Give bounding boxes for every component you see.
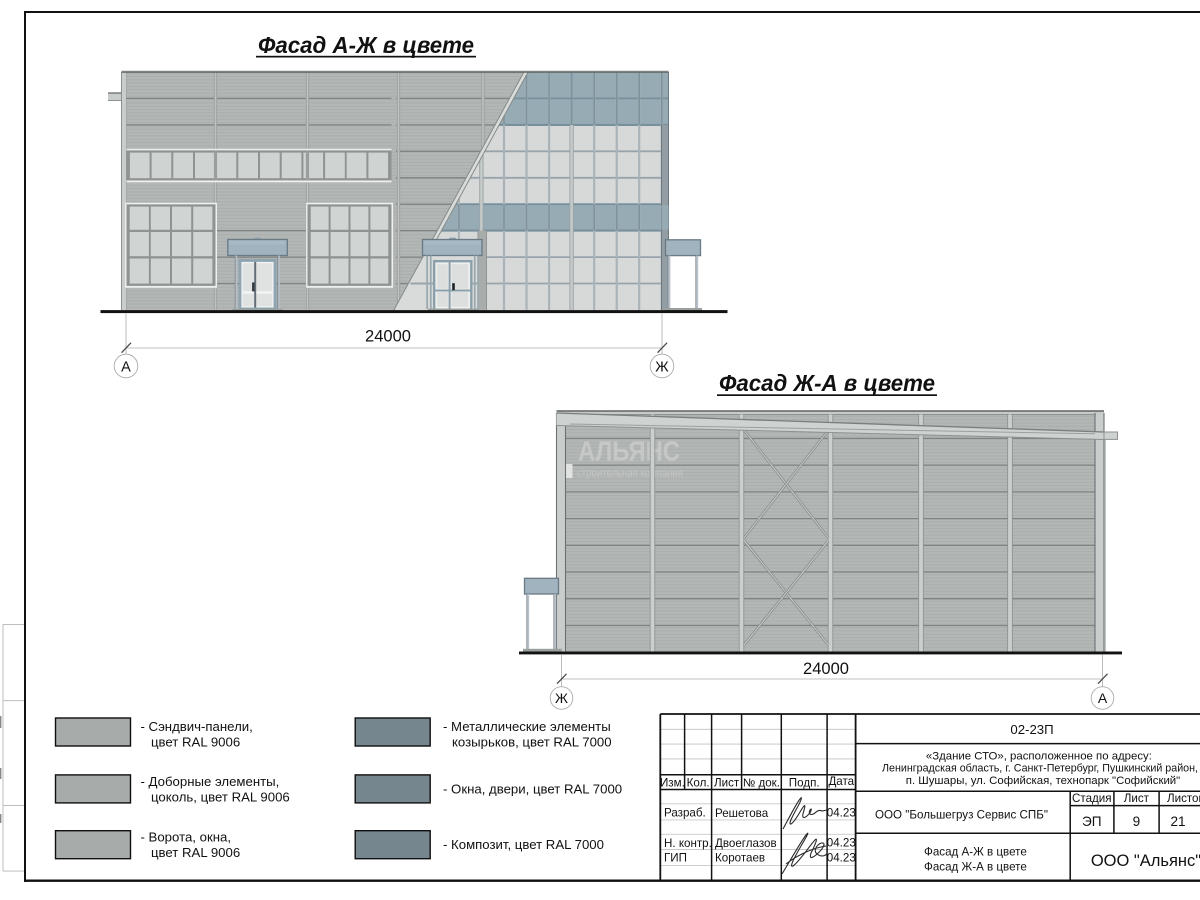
svg-text:Лист: Лист (1124, 792, 1150, 805)
svg-text:цоколь, цвет RAL 9006: цоколь, цвет RAL 9006 (151, 790, 290, 805)
svg-text:ЭП: ЭП (1082, 814, 1102, 829)
svg-text:Дата: Дата (828, 775, 854, 788)
svg-text:Коротаев: Коротаев (715, 852, 765, 865)
svg-text:№ док.: № док. (743, 776, 780, 789)
svg-text:А: А (1098, 690, 1108, 706)
svg-text:Лист: Лист (714, 776, 740, 789)
svg-text:Решетова: Решетова (715, 807, 769, 820)
svg-text:Фасад Ж-А в цвете: Фасад Ж-А в цвете (719, 370, 935, 396)
svg-text:Фасад А-Ж в цвете: Фасад А-Ж в цвете (924, 846, 1027, 859)
svg-text:Кол.: Кол. (687, 776, 710, 789)
svg-text:ГИП: ГИП (664, 852, 687, 865)
svg-text:9: 9 (1133, 814, 1141, 829)
svg-text:- Окна, двери, цвет RAL 7000: - Окна, двери, цвет RAL 7000 (443, 782, 622, 797)
svg-text:«Здание СТО», расположенное по: «Здание СТО», расположенное по адресу: (926, 751, 1152, 763)
svg-text:02-23П: 02-23П (1010, 722, 1053, 737)
svg-text:цвет RAL 9006: цвет RAL 9006 (151, 845, 240, 860)
svg-text:Двоеглазов: Двоеглазов (715, 837, 777, 850)
svg-text:Н. контр.: Н. контр. (664, 837, 712, 850)
svg-text:Стадия: Стадия (1072, 792, 1112, 805)
svg-text:Ленинградская область, г. Санк: Ленинградская область, г. Санкт-Петербур… (882, 763, 1198, 775)
svg-text:строительная компания: строительная компания (577, 468, 683, 480)
svg-text:21: 21 (1170, 814, 1185, 829)
svg-text:Ж: Ж (555, 690, 568, 706)
svg-text:Листов: Листов (1167, 792, 1200, 805)
svg-text:04.23: 04.23 (827, 807, 856, 820)
svg-text:п. Шушары, ул. Софийская, техн: п. Шушары, ул. Софийская, технопарк "Соф… (906, 775, 1180, 787)
svg-text:Ж: Ж (655, 359, 669, 375)
svg-text:А: А (121, 359, 131, 375)
svg-text:Фасад А-Ж в цвете: Фасад А-Ж в цвете (258, 32, 474, 58)
svg-text:04.23: 04.23 (827, 837, 856, 850)
svg-text:- Металлические элементы: - Металлические элементы (443, 719, 611, 734)
svg-text:Фасад Ж-А в цвете: Фасад Ж-А в цвете (924, 860, 1027, 873)
svg-text:Подп.: Подп. (789, 776, 820, 789)
svg-text:- Доборные элементы,: - Доборные элементы, (141, 774, 280, 789)
svg-text:- Сэндвич-панели,: - Сэндвич-панели, (141, 719, 253, 734)
svg-text:АЛЬЯНС: АЛЬЯНС (578, 436, 680, 467)
svg-text:- Ворота, окна,: - Ворота, окна, (141, 830, 232, 845)
svg-text:24000: 24000 (365, 328, 411, 346)
svg-text:ООО "Альянс": ООО "Альянс" (1091, 852, 1200, 870)
svg-text:цвет RAL 9006: цвет RAL 9006 (151, 735, 240, 750)
svg-text:24000: 24000 (803, 660, 849, 678)
svg-text:04.23: 04.23 (827, 852, 856, 865)
svg-text:ООО "Большегруз Сервис СПБ": ООО "Большегруз Сервис СПБ" (875, 809, 1048, 822)
svg-text:Разраб.: Разраб. (664, 807, 706, 820)
svg-text:Изм.: Изм. (660, 776, 685, 789)
svg-text:козырьков, цвет RAL 7000: козырьков, цвет RAL 7000 (452, 735, 612, 750)
svg-text:- Композит, цвет RAL 7000: - Композит, цвет RAL 7000 (443, 837, 604, 852)
